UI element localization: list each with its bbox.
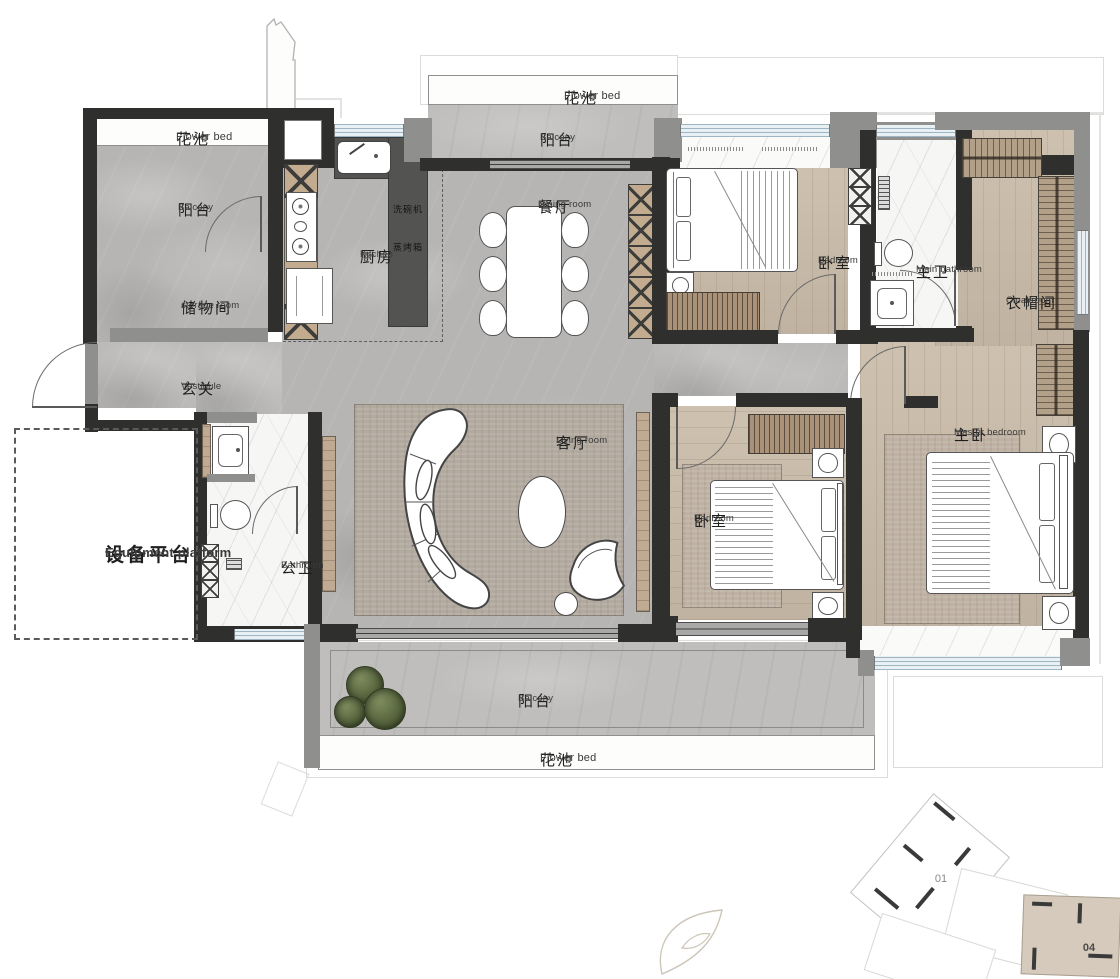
dining-chair [561,256,589,292]
wall [846,398,862,640]
bedroom-top-door-leaf [834,274,836,334]
bedroom-mid-window [676,622,810,636]
entry-door-arc [32,342,97,407]
wall [652,616,678,642]
wall [736,393,848,407]
toilet-tank [210,504,218,528]
exterior-shaft [264,14,300,114]
outer-notch-bottom-left [261,761,310,816]
cloakroom-wardrobe-right2 [1036,344,1076,416]
equipment-platform-outline [14,428,198,640]
balcony-sliding-door [490,160,630,169]
basin-drain [236,448,240,452]
wall [83,108,97,344]
wall [308,412,322,642]
dining-cabinet-x [628,308,654,339]
wall [652,330,778,344]
toilet-tank [874,242,882,266]
shaft-x [848,187,872,206]
wall [654,118,682,162]
wall [1060,638,1090,666]
cloakroom-window [1077,230,1088,315]
bed-mid [710,480,844,590]
media-wall-panel [322,436,336,592]
nightstand [1042,596,1076,630]
toilet-bowl [220,500,251,530]
cloakroom-wardrobe-top [962,138,1042,178]
dresser [666,292,760,332]
wall [904,396,938,408]
kitchen-window [334,124,404,137]
dining-cabinet-x [628,277,654,308]
nightstand [812,448,844,478]
shaft-x [201,580,219,598]
wall [304,624,320,768]
shaft-x [848,168,872,187]
bedroom-top-window [680,124,830,137]
main-bath-door-leaf [954,270,956,326]
blanket [932,457,990,589]
vanity-side-panel [202,424,211,478]
keyplan-label-04: 04 [1083,942,1095,954]
flower-bed-strip-bottom [318,735,875,770]
keyplan-unit-04 [1021,894,1120,977]
dining-cabinet-x [628,215,654,246]
wall [846,626,860,658]
dining-chair [479,256,507,292]
dining-chair [479,300,507,336]
wall [652,407,670,640]
wall [858,650,874,676]
storage-door-leaf [260,196,262,252]
shaft-x [848,206,872,225]
public-bath-door-leaf [296,486,298,534]
master-window [874,656,1062,670]
dining-table [506,206,562,338]
headboard [837,483,843,585]
coffee-table [518,476,566,548]
side-stool [554,592,578,616]
living-sliding-door [356,628,620,639]
dining-chair [561,300,589,336]
storage-shelf [110,328,268,342]
blanket [741,171,795,269]
plant [364,688,406,730]
shelf-mark [872,272,912,276]
balcony-bottom-inner-line [330,650,864,728]
sofa [398,406,498,612]
keyplan-label-01: 01 [935,873,947,885]
wall [207,474,255,482]
entry-door-leaf [32,406,97,408]
master-door-leaf [904,346,906,404]
toilet-bowl [884,239,913,267]
public-bath-window [234,629,306,640]
wall [404,118,432,162]
bay-window-master [860,626,1076,658]
pillow [676,177,691,217]
outer-connector-h [296,98,342,100]
wall [83,108,285,119]
headboard [1059,455,1068,589]
curtain-mark [762,147,817,151]
tv-wall-panel [636,412,650,612]
outer-outline-right [1099,112,1101,664]
bed-top [666,168,798,272]
wall [860,328,974,342]
master-door-arc [850,346,906,404]
dining-cabinet-x [628,184,654,215]
basin-drain [890,301,894,305]
plant [334,696,366,728]
label-steam-oven: 蒸烤箱 [393,243,423,254]
label-dishwasher: 洗碗机 [393,205,423,216]
wall [618,624,654,642]
dining-chair [479,212,507,248]
headboard-line [673,172,674,268]
floor-plan: 01 04 花池Flower bed 阳台Balcony 储物间storage … [0,0,1120,979]
sink-drain [374,154,378,158]
curtain-mark [688,147,743,151]
dining-cabinet-x [628,246,654,277]
kitchen-shaft [284,120,322,160]
blanket [715,484,773,584]
wall [935,112,1077,130]
outer-connector-v [340,98,342,118]
outer-outline-top-right [677,57,1104,115]
flower-bed-strip-top [428,75,678,105]
pillow [821,488,836,532]
dining-chair [561,212,589,248]
outer-outline-bottom-right [893,676,1103,768]
floor-corridor [654,343,848,396]
nightstand [812,592,844,620]
wall [652,393,678,407]
towel-rack [878,176,890,210]
compass-mark [648,902,744,979]
pillow [676,221,691,261]
bed-master [926,452,1074,594]
pillow [1039,463,1055,521]
shaft-x [201,562,219,580]
bedroom-mid-door-leaf [676,407,678,469]
wall [1040,155,1074,175]
wall [207,412,257,423]
